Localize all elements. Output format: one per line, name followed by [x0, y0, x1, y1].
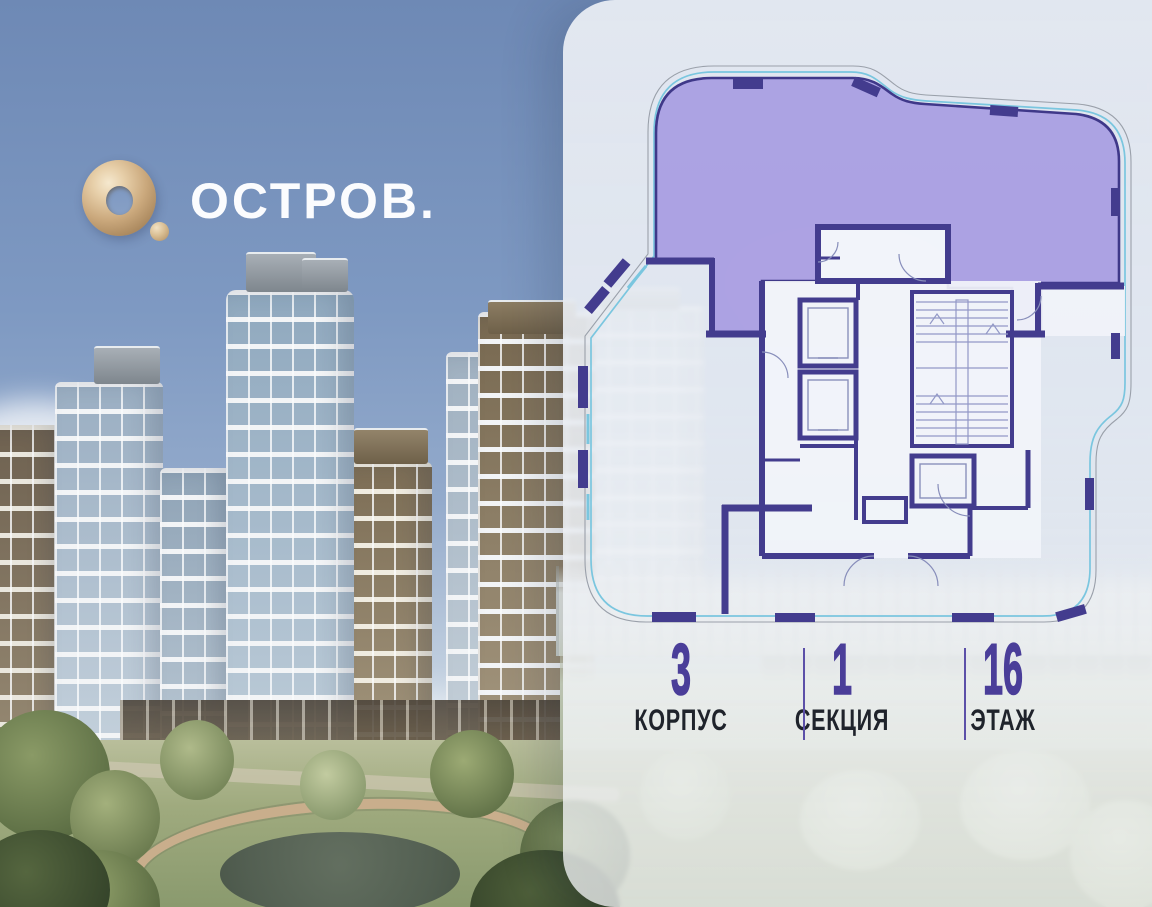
stat-korpus-value: 3 [644, 634, 719, 706]
stat-divider [803, 648, 805, 740]
rooftop-box [94, 346, 160, 384]
stat-korpus-label: КОРПУС [627, 706, 735, 736]
glazing-marks [588, 266, 646, 520]
gold-dot-icon [150, 222, 169, 241]
highlighted-apartment-region[interactable] [656, 78, 1119, 334]
tree [160, 720, 234, 800]
elevator-shaft-small [912, 456, 974, 506]
tree [430, 730, 514, 818]
pond [220, 832, 460, 907]
stat-sekciya-value: 1 [805, 634, 880, 706]
stairs [916, 300, 1008, 444]
info-panel: 3 КОРПУС 1 СЕКЦИЯ 16 ЭТАЖ [563, 0, 1152, 907]
tree [300, 750, 366, 820]
brand-logo[interactable]: ОСТРОВ. [82, 158, 502, 250]
stat-korpus: 3 КОРПУС [606, 634, 756, 736]
brand-name: ОСТРОВ. [190, 172, 437, 230]
stat-divider [964, 648, 966, 740]
stat-etazh: 16 ЭТАЖ [928, 634, 1078, 736]
page: ОСТРОВ. [0, 0, 1152, 907]
door-arcs [762, 242, 1041, 586]
apartment-stats: 3 КОРПУС 1 СЕКЦИЯ 16 ЭТАЖ [606, 634, 1078, 736]
rooftop-box [302, 258, 348, 292]
elevator-shaft [800, 300, 856, 366]
rooftop-box [354, 428, 428, 464]
gold-ring-hole [106, 186, 133, 215]
gold-ring-icon [82, 160, 156, 236]
elevator-shaft [800, 372, 856, 438]
stat-etazh-value: 16 [966, 634, 1041, 706]
stat-sekciya: 1 СЕКЦИЯ [767, 634, 917, 736]
